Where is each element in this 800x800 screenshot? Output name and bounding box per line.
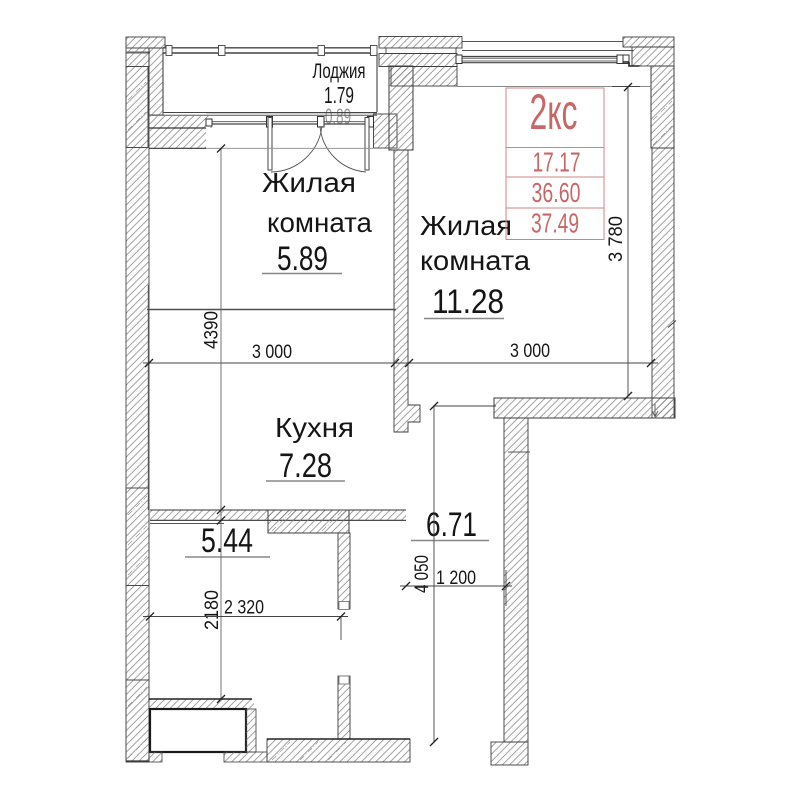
svg-text:17.17: 17.17 bbox=[533, 147, 581, 178]
svg-text:0.89: 0.89 bbox=[325, 104, 351, 129]
svg-text:36.60: 36.60 bbox=[532, 177, 581, 208]
svg-text:2кс: 2кс bbox=[530, 84, 578, 140]
svg-text:5.89: 5.89 bbox=[277, 240, 328, 278]
svg-text:4 050: 4 050 bbox=[412, 555, 433, 593]
svg-text:2 320: 2 320 bbox=[224, 598, 264, 619]
svg-text:Жилая: Жилая bbox=[420, 210, 512, 241]
svg-text:Кухня: Кухня bbox=[275, 412, 354, 443]
svg-text:Лоджия: Лоджия bbox=[313, 60, 366, 83]
svg-text:11.28: 11.28 bbox=[432, 283, 504, 321]
svg-text:5.44: 5.44 bbox=[201, 522, 253, 560]
svg-text:3 000: 3 000 bbox=[510, 341, 550, 362]
svg-text:37.49: 37.49 bbox=[531, 208, 579, 239]
svg-text:1 200: 1 200 bbox=[436, 568, 476, 589]
svg-text:3 000: 3 000 bbox=[252, 342, 292, 363]
svg-text:2180: 2180 bbox=[202, 590, 223, 630]
svg-text:7.28: 7.28 bbox=[279, 447, 332, 485]
svg-text:4390: 4390 bbox=[202, 311, 223, 349]
svg-text:Жилая: Жилая bbox=[262, 167, 356, 198]
svg-text:3 780: 3 780 bbox=[606, 216, 627, 262]
svg-text:комната: комната bbox=[420, 245, 530, 276]
svg-text:комната: комната bbox=[267, 207, 372, 238]
